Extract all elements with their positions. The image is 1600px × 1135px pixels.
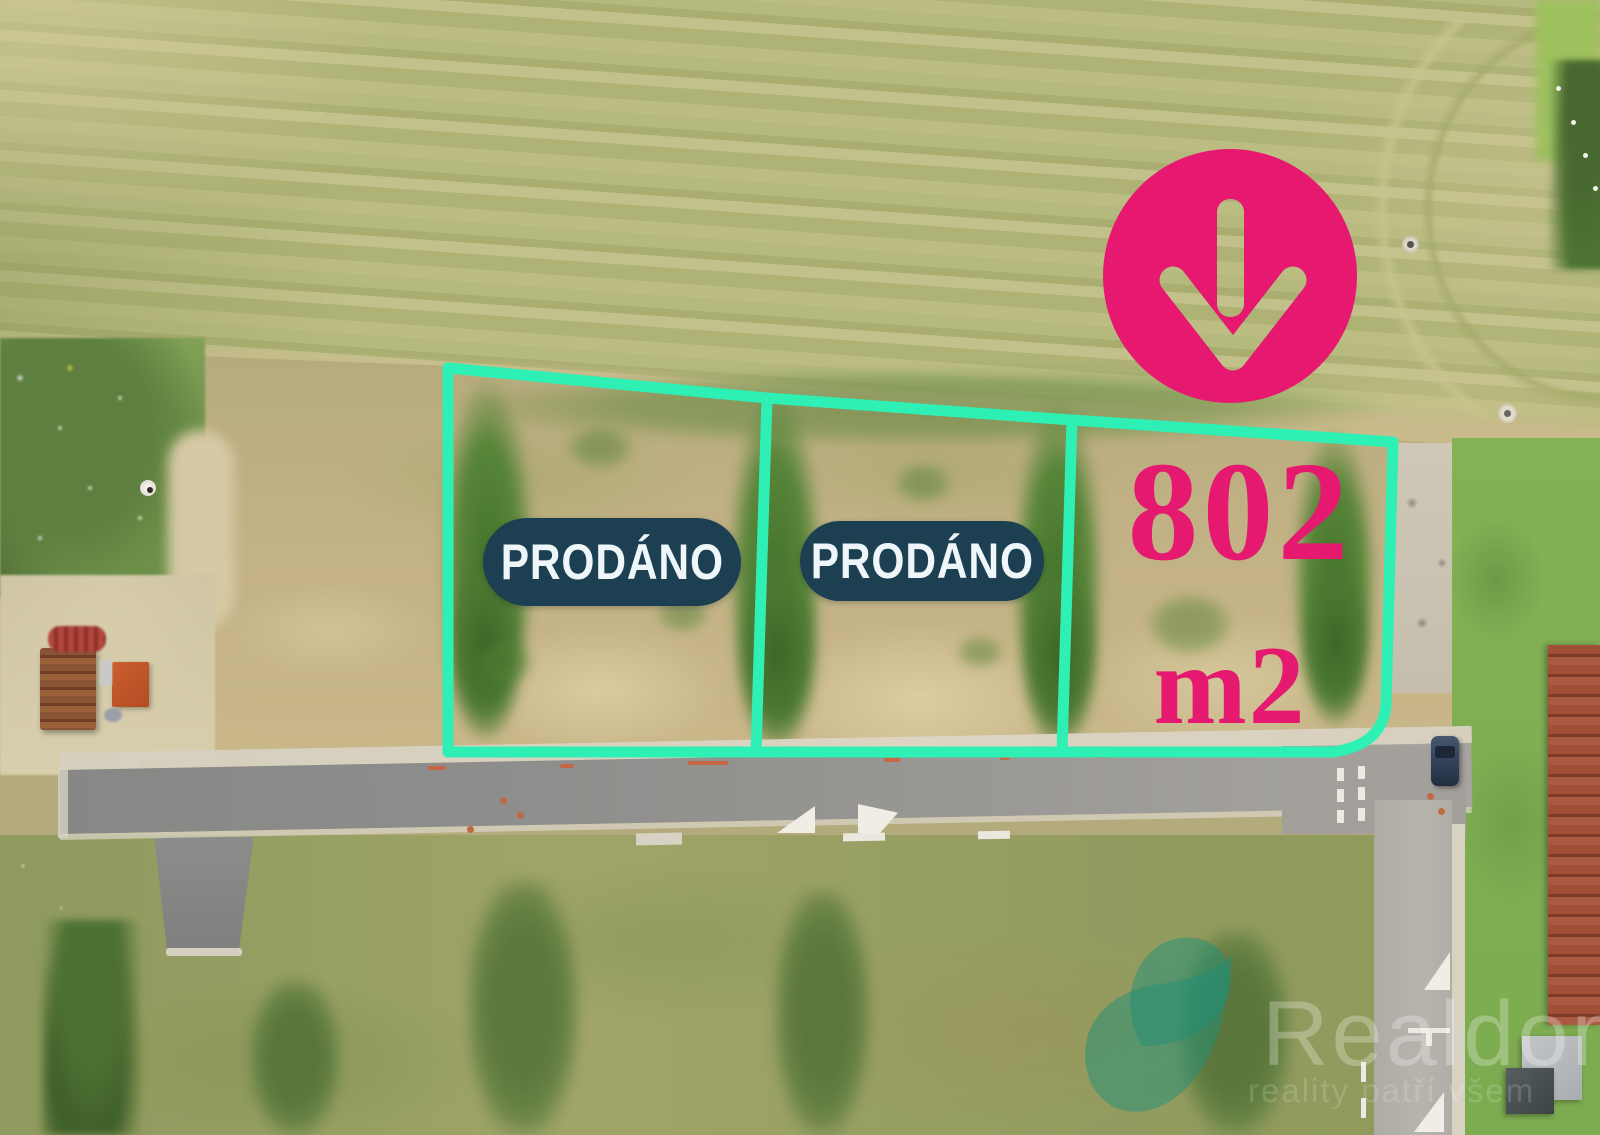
aerial-photo: PRODÁNO PRODÁNO 802 m2 Realdomus reality…: [0, 0, 1600, 1135]
sold-badge-plot-1: PRODÁNO: [483, 518, 741, 606]
sold-badge-label: PRODÁNO: [500, 533, 723, 591]
sold-badge-plot-2: PRODÁNO: [800, 521, 1044, 601]
plot-area-value: 802: [1110, 440, 1370, 582]
watermark-tagline: reality patří všem: [1248, 1072, 1535, 1110]
plot-area-unit: m2: [1110, 630, 1350, 742]
sold-badge-label: PRODÁNO: [810, 532, 1033, 590]
realdomus-logo-mark: [1082, 926, 1238, 1128]
arrow-down-icon: [1097, 143, 1363, 409]
